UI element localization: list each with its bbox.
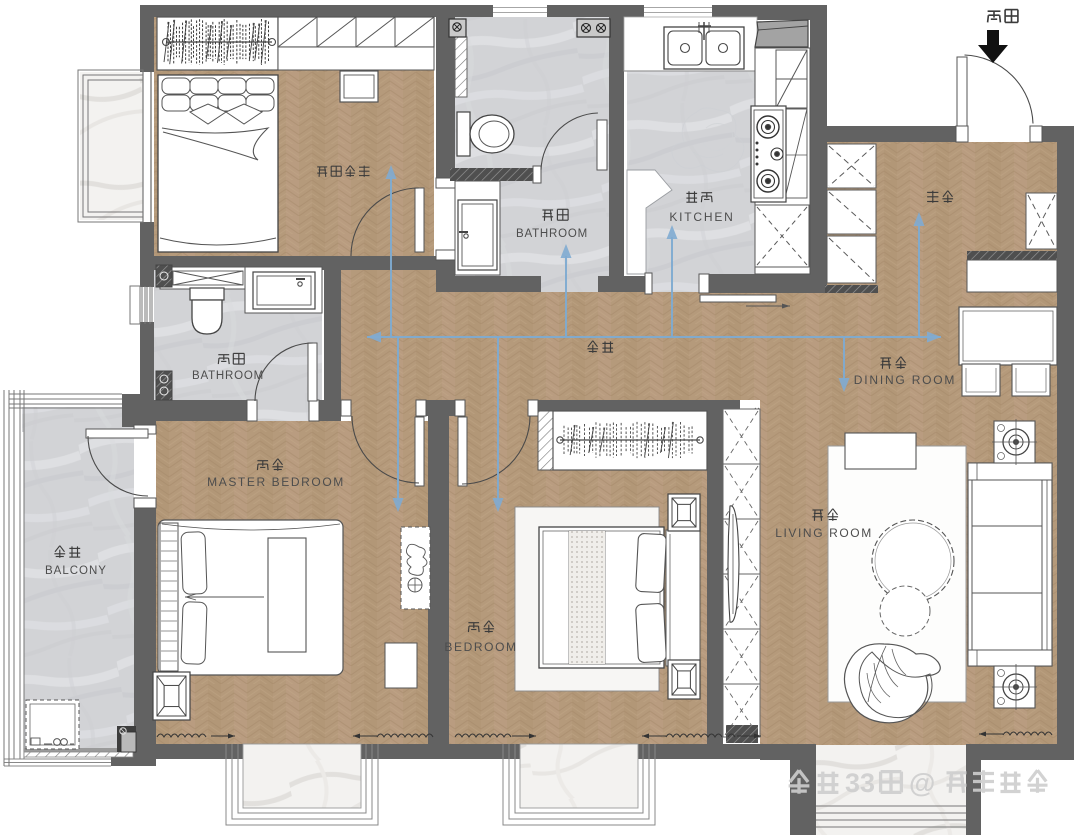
- svg-text:KITCHEN: KITCHEN: [669, 210, 734, 224]
- svg-text:@: @: [909, 768, 935, 798]
- svg-text:BATHROOM: BATHROOM: [516, 228, 588, 240]
- svg-text:LIVING ROOM: LIVING ROOM: [775, 526, 873, 540]
- svg-text:BEDROOM: BEDROOM: [444, 640, 517, 654]
- svg-text:MASTER BEDROOM: MASTER BEDROOM: [207, 475, 345, 489]
- svg-text:DINING ROOM: DINING ROOM: [854, 373, 956, 387]
- svg-text:BATHROOM: BATHROOM: [192, 370, 264, 382]
- svg-text:33: 33: [845, 768, 875, 798]
- svg-text:BALCONY: BALCONY: [45, 565, 107, 577]
